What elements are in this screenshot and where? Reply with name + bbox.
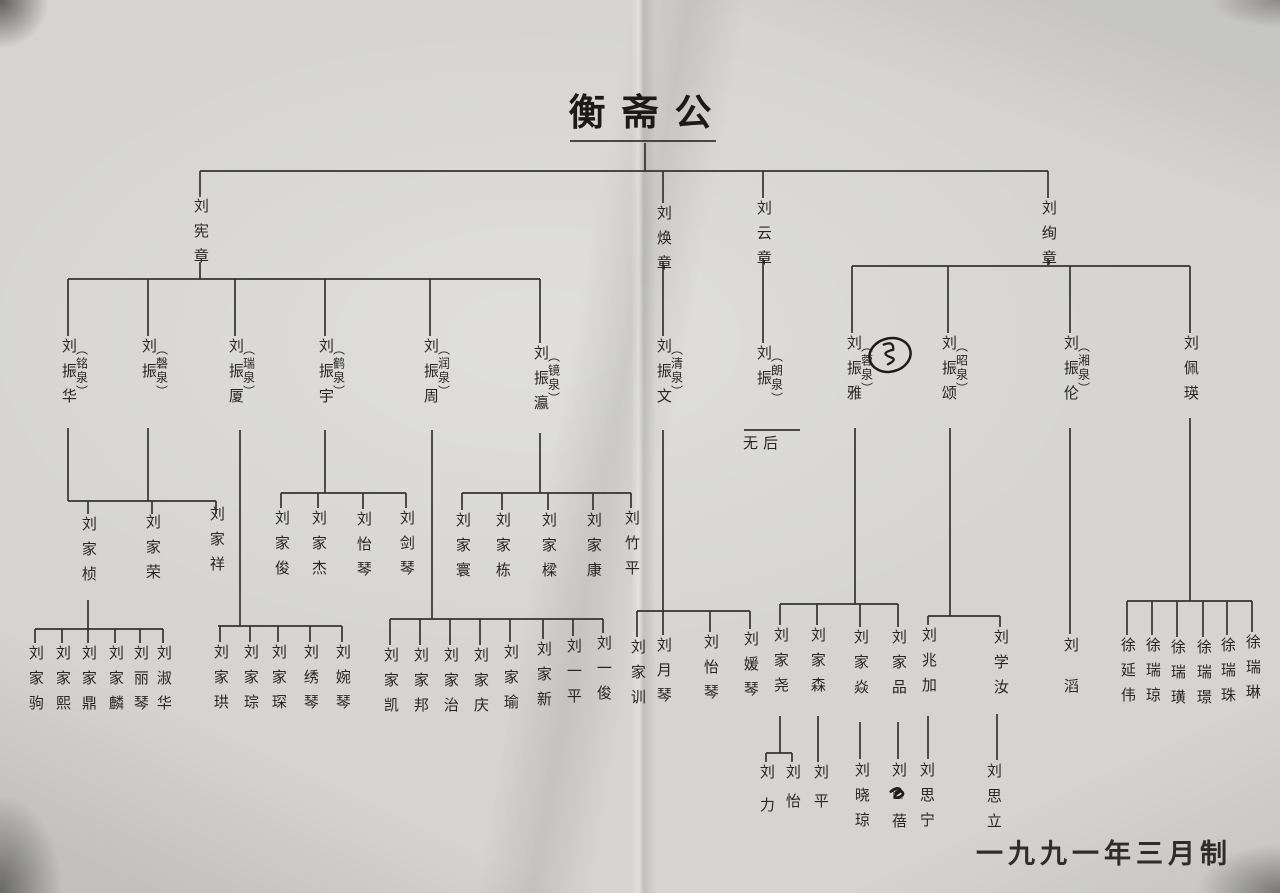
person-wanqin: 刘婉琴 bbox=[333, 644, 349, 719]
person-jiayao: 刘家尧 bbox=[771, 627, 787, 702]
person-zhaojia: 刘兆加 bbox=[919, 627, 935, 702]
person-xu-ruihuang: 徐瑞璜 bbox=[1168, 639, 1184, 714]
person-yiping: 刘一平 bbox=[564, 638, 580, 713]
person-zhensha: 刘振厦（瑞泉） bbox=[226, 338, 254, 413]
person-name: 刘一平 bbox=[564, 638, 580, 713]
courtesy-name: （朗泉） bbox=[770, 345, 783, 406]
courtesy-name: （湘泉） bbox=[1077, 335, 1090, 410]
person-name: 刘家焱 bbox=[851, 629, 867, 704]
person-name: 刘宪章 bbox=[191, 198, 207, 273]
person-shuhua: 刘淑华 bbox=[154, 645, 170, 720]
person-name: 刘家熙 bbox=[53, 645, 69, 720]
person-jiahuan: 刘家寰 bbox=[453, 512, 469, 587]
person-name: 刘丽琴 bbox=[131, 645, 147, 720]
person-zhenlun: 刘振伦（湘泉） bbox=[1061, 335, 1089, 410]
person-zhen-langquan: 刘振（朗泉） bbox=[754, 345, 782, 406]
person-jialiang: 刘家樑 bbox=[539, 512, 555, 587]
person-li: 刘力 bbox=[757, 764, 773, 830]
person-jiacong: 刘家琮 bbox=[241, 644, 257, 719]
person-zhenhua: 刘振华（铭泉） bbox=[59, 338, 87, 413]
person-name: 徐瑞琳 bbox=[1243, 634, 1259, 709]
person-name: 刘振伦 bbox=[1061, 335, 1077, 410]
courtesy-name: （磬泉） bbox=[155, 338, 168, 399]
person-xu-ruiqiong: 徐瑞琼 bbox=[1143, 637, 1159, 712]
person-sili: 刘思立 bbox=[984, 763, 1000, 838]
person-name: 刘家珙 bbox=[211, 644, 227, 719]
person-xueru: 刘学汝 bbox=[991, 629, 1007, 704]
person-name: 刘家凯 bbox=[381, 647, 397, 722]
person-peiying: 刘佩瑛 bbox=[1181, 335, 1197, 410]
person-name: 刘怡琴 bbox=[701, 634, 717, 709]
person-jiachen: 刘家琛 bbox=[269, 644, 285, 719]
person-name: 刘家尧 bbox=[771, 627, 787, 702]
person-name: 刘力 bbox=[757, 764, 773, 830]
person-name: 刘家琛 bbox=[269, 644, 285, 719]
person-jiayu: 刘家瑜 bbox=[501, 644, 517, 719]
person-name: 刘滔 bbox=[1061, 637, 1077, 719]
person-name: 徐延伟 bbox=[1118, 637, 1134, 712]
person-name: 刘竹平 bbox=[622, 510, 638, 585]
person-jiaxin: 刘家新 bbox=[534, 641, 550, 716]
person-jiaju: 刘家驹 bbox=[26, 645, 42, 720]
courtesy-name: （镜泉） bbox=[547, 345, 560, 420]
person-name: 刘婉琴 bbox=[333, 644, 349, 719]
person-name: 刘淑华 bbox=[154, 645, 170, 720]
person-name: 刘家森 bbox=[808, 627, 824, 702]
person-jiaqing: 刘家庆 bbox=[471, 647, 487, 722]
person-xiaoqiong: 刘晓琼 bbox=[852, 762, 868, 837]
person-name: 刘振 bbox=[139, 338, 155, 399]
circled-scribble-annotation bbox=[864, 329, 916, 381]
person-zhenying: 刘振瀛（镜泉） bbox=[531, 345, 559, 420]
person-yi: 刘怡 bbox=[783, 764, 799, 822]
person-name: 刘家康 bbox=[584, 512, 600, 587]
person-name: 刘家麟 bbox=[106, 645, 122, 720]
person-name: 刘振文 bbox=[654, 338, 670, 413]
person-name: 刘家庆 bbox=[471, 647, 487, 722]
person-name: 刘思立 bbox=[984, 763, 1000, 838]
person-ping: 刘平 bbox=[811, 764, 827, 822]
person-zhenzhou: 刘振周（润泉） bbox=[421, 338, 449, 413]
person-name: 刘家杰 bbox=[309, 510, 325, 585]
person-jiakai: 刘家凯 bbox=[381, 647, 397, 722]
person-jialin: 刘家麟 bbox=[106, 645, 122, 720]
person-name: 刘家栋 bbox=[493, 512, 509, 587]
person-name: 刘绣琴 bbox=[301, 644, 317, 719]
chart-title: 衡斋公 bbox=[569, 82, 728, 136]
person-name: 刘兆加 bbox=[919, 627, 935, 702]
person-jiarong: 刘家荣 bbox=[143, 514, 159, 589]
person-name: 徐瑞珠 bbox=[1218, 637, 1234, 712]
person-name: 刘家驹 bbox=[26, 645, 42, 720]
person-name: 刘思宁 bbox=[917, 762, 933, 837]
person-yunzhang: 刘云章 bbox=[754, 200, 770, 275]
person-name: 刘剑琴 bbox=[397, 510, 413, 585]
person-name: 刘平 bbox=[811, 764, 827, 822]
person-name: 刘家瑜 bbox=[501, 644, 517, 719]
person-name: 刘振厦 bbox=[226, 338, 242, 413]
person-name: 刘振 bbox=[754, 345, 770, 406]
person-name: 徐瑞璜 bbox=[1168, 639, 1184, 714]
person-name: 刘云章 bbox=[754, 200, 770, 275]
person-jiazhen: 刘家桢 bbox=[79, 516, 95, 591]
person-name: 刘家桢 bbox=[79, 516, 95, 591]
person-yijun: 刘一俊 bbox=[594, 635, 610, 710]
person-liqin: 刘丽琴 bbox=[131, 645, 147, 720]
person-jiasen: 刘家森 bbox=[808, 627, 824, 702]
person-zhensong: 刘振颂（昭泉） bbox=[939, 335, 967, 410]
person-xiuqin: 刘绣琴 bbox=[301, 644, 317, 719]
person-name: 刘家治 bbox=[441, 647, 457, 722]
courtesy-name: （铭泉） bbox=[75, 338, 88, 413]
person-jiadong: 刘家栋 bbox=[493, 512, 509, 587]
person-jiaxiang: 刘家祥 bbox=[207, 506, 223, 581]
person-name: 刘振瀛 bbox=[531, 345, 547, 420]
person-xu-ruilin: 徐瑞琳 bbox=[1243, 634, 1259, 709]
person-name: 刘月琴 bbox=[654, 637, 670, 712]
person-jiabang: 刘家邦 bbox=[411, 647, 427, 722]
person-zhenwen: 刘振文（清泉） bbox=[654, 338, 682, 413]
person-name: 刘怡 bbox=[783, 764, 799, 822]
ink-scribble-annotation bbox=[883, 779, 913, 809]
person-name: 无后 bbox=[743, 437, 783, 453]
person-name: 刘怡琴 bbox=[354, 511, 370, 586]
person-name: 刘振华 bbox=[59, 338, 75, 413]
person-jiazhi: 刘家治 bbox=[441, 647, 457, 722]
person-name: 刘家祥 bbox=[207, 506, 223, 581]
person-name: 刘振雅 bbox=[844, 335, 860, 410]
person-jiajun: 刘家俊 bbox=[272, 510, 288, 585]
person-name: 刘焕章 bbox=[654, 205, 670, 280]
person-jiapin: 刘家品 bbox=[889, 629, 905, 704]
person-name: 刘家训 bbox=[628, 639, 644, 714]
person-jiayan: 刘家焱 bbox=[851, 629, 867, 704]
person-name: 刘一俊 bbox=[594, 635, 610, 710]
courtesy-name: （昭泉） bbox=[955, 335, 968, 410]
person-jiajie: 刘家杰 bbox=[309, 510, 325, 585]
person-name: 刘家俊 bbox=[272, 510, 288, 585]
person-name: 刘振宇 bbox=[316, 338, 332, 413]
courtesy-name: （鹤泉） bbox=[332, 338, 345, 413]
person-zhenyu: 刘振宇（鹤泉） bbox=[316, 338, 344, 413]
person-zhen-qingquan: 刘振（磬泉） bbox=[139, 338, 167, 399]
person-name: 刘佩瑛 bbox=[1181, 335, 1197, 410]
person-name: 刘振颂 bbox=[939, 335, 955, 410]
person-yiqin-b: 刘怡琴 bbox=[701, 634, 717, 709]
person-zhuping: 刘竹平 bbox=[622, 510, 638, 585]
note-wuhou: 无后 bbox=[743, 437, 783, 453]
person-sining: 刘思宁 bbox=[917, 762, 933, 837]
person-name: 刘媛琴 bbox=[741, 631, 757, 706]
person-name: 刘家邦 bbox=[411, 647, 427, 722]
person-name: 刘家樑 bbox=[539, 512, 555, 587]
person-name: 刘家新 bbox=[534, 641, 550, 716]
person-xu-yanwei: 徐延伟 bbox=[1118, 637, 1134, 712]
person-name: 刘学汝 bbox=[991, 629, 1007, 704]
person-yiqin-a: 刘怡琴 bbox=[354, 511, 370, 586]
person-jiaxi: 刘家熙 bbox=[53, 645, 69, 720]
person-name: 刘绚章 bbox=[1039, 200, 1055, 275]
courtesy-name: （润泉） bbox=[437, 338, 450, 413]
person-name: 刘晓琼 bbox=[852, 762, 868, 837]
person-jiading: 刘家鼎 bbox=[79, 645, 95, 720]
person-xuanzhang: 刘绚章 bbox=[1039, 200, 1055, 275]
person-tao: 刘滔 bbox=[1061, 637, 1077, 719]
person-name: 徐瑞琼 bbox=[1143, 637, 1159, 712]
courtesy-name: （清泉） bbox=[670, 338, 683, 413]
person-jiaxun: 刘家训 bbox=[628, 639, 644, 714]
person-name: 刘家寰 bbox=[453, 512, 469, 587]
person-jianqin: 刘剑琴 bbox=[397, 510, 413, 585]
person-name: 刘家品 bbox=[889, 629, 905, 704]
person-name: 刘振周 bbox=[421, 338, 437, 413]
date-note: 一九九一年三月制 bbox=[976, 832, 1232, 871]
person-jiakang: 刘家康 bbox=[584, 512, 600, 587]
person-xu-ruizhu: 徐瑞珠 bbox=[1218, 637, 1234, 712]
person-yueqin: 刘月琴 bbox=[654, 637, 670, 712]
person-jiagong: 刘家珙 bbox=[211, 644, 227, 719]
person-yuanqin: 刘媛琴 bbox=[741, 631, 757, 706]
person-name: 刘家鼎 bbox=[79, 645, 95, 720]
person-xianzhang: 刘宪章 bbox=[191, 198, 207, 273]
courtesy-name: （瑞泉） bbox=[242, 338, 255, 413]
person-name: 刘家琮 bbox=[241, 644, 257, 719]
person-huanzhang: 刘焕章 bbox=[654, 205, 670, 280]
person-xu-ruijing: 徐瑞璟 bbox=[1194, 639, 1210, 714]
person-name: 刘家荣 bbox=[143, 514, 159, 589]
person-name: 徐瑞璟 bbox=[1194, 639, 1210, 714]
